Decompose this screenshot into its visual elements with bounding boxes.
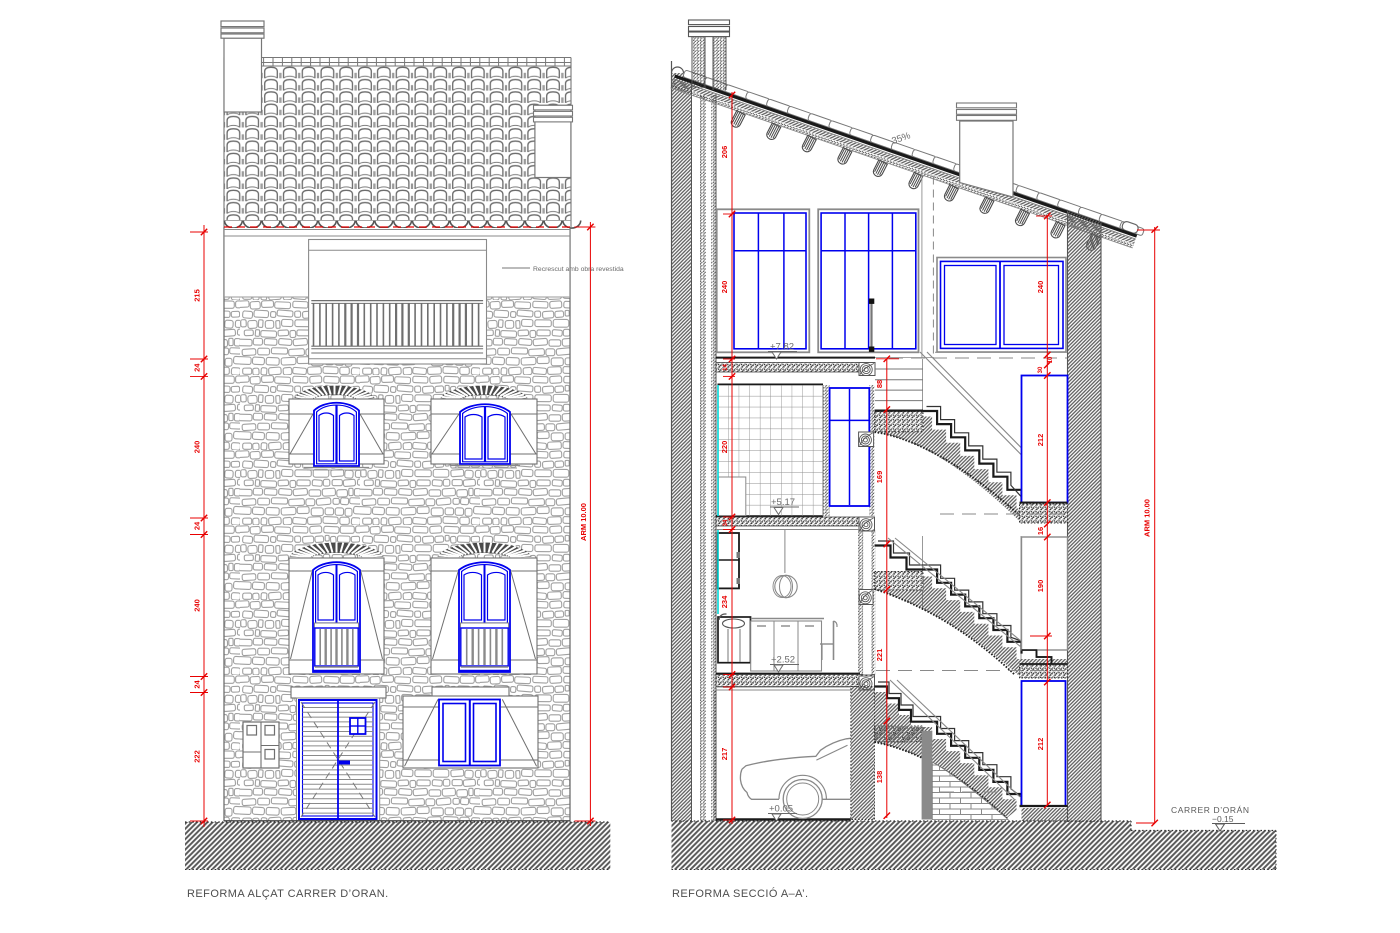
svg-text:190: 190 <box>1036 580 1045 593</box>
svg-text:34: 34 <box>723 519 729 526</box>
svg-text:30: 30 <box>1038 366 1044 373</box>
svg-text:14: 14 <box>723 364 729 371</box>
svg-text:24: 24 <box>193 680 202 689</box>
svg-text:+5.17: +5.17 <box>771 497 795 508</box>
svg-text:138: 138 <box>875 771 884 784</box>
svg-text:240: 240 <box>193 599 202 612</box>
svg-text:ARM 10.00: ARM 10.00 <box>1143 499 1152 537</box>
svg-text:ARM 10.00: ARM 10.00 <box>579 503 588 541</box>
svg-text:217: 217 <box>720 748 729 761</box>
svg-text:222: 222 <box>193 750 202 763</box>
svg-text:CARRER D’ORÁN: CARRER D’ORÁN <box>1171 805 1250 815</box>
svg-text:234: 234 <box>720 595 729 608</box>
svg-text:240: 240 <box>1036 281 1045 294</box>
svg-text:212: 212 <box>1036 738 1045 751</box>
svg-text:169: 169 <box>875 471 884 484</box>
svg-text:88: 88 <box>875 380 884 388</box>
svg-text:+7.82: +7.82 <box>770 342 794 353</box>
svg-text:10: 10 <box>1048 356 1054 363</box>
svg-text:240: 240 <box>193 441 202 454</box>
svg-text:221: 221 <box>875 649 884 662</box>
svg-text:220: 220 <box>720 441 729 454</box>
svg-text:Recrescut amb obra revestida: Recrescut amb obra revestida <box>533 266 624 273</box>
svg-text:REFORMA SECCIÓ A–A’.: REFORMA SECCIÓ A–A’. <box>672 887 809 900</box>
svg-text:REFORMA ALÇAT CARRER D’ORAN.: REFORMA ALÇAT CARRER D’ORAN. <box>187 888 389 900</box>
svg-text:212: 212 <box>1036 434 1045 447</box>
svg-text:+2.52: +2.52 <box>771 655 795 666</box>
svg-text:−0.15: −0.15 <box>1212 814 1234 824</box>
svg-text:16: 16 <box>1036 527 1045 535</box>
svg-text:+0.05: +0.05 <box>769 804 793 815</box>
svg-text:24: 24 <box>193 521 202 530</box>
svg-text:240: 240 <box>720 281 729 294</box>
svg-text:215: 215 <box>193 289 202 302</box>
svg-text:24: 24 <box>193 363 202 372</box>
svg-text:206: 206 <box>720 146 729 159</box>
